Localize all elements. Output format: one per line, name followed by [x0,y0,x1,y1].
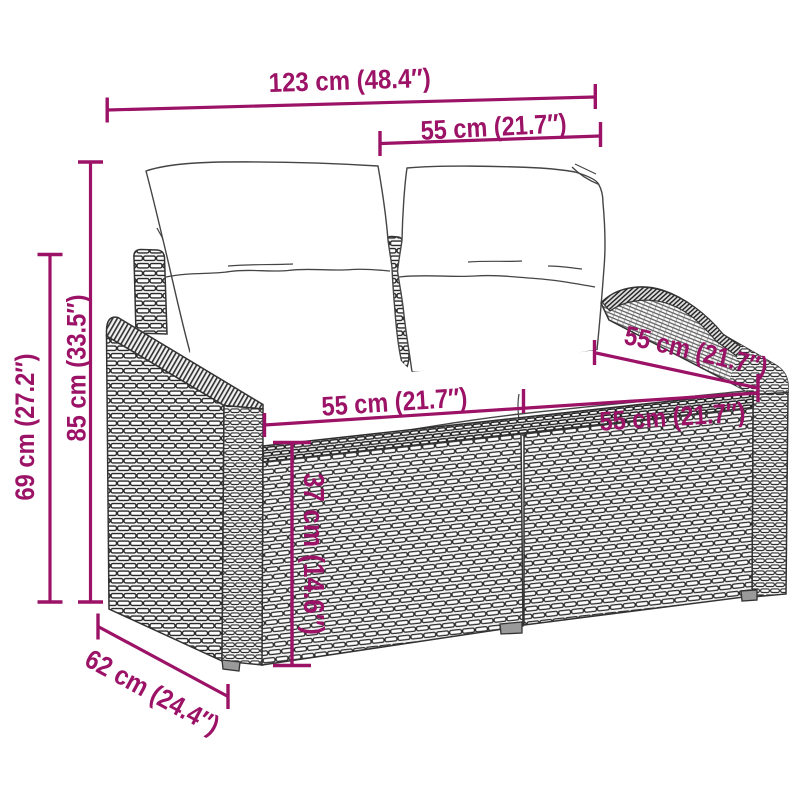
svg-text:123 cm (48.4″): 123 cm (48.4″) [268,63,431,98]
svg-text:85 cm (33.5″): 85 cm (33.5″) [62,295,92,442]
svg-text:69 cm (27.2″): 69 cm (27.2″) [10,354,40,501]
svg-text:37 cm (14.6″): 37 cm (14.6″) [297,473,329,635]
